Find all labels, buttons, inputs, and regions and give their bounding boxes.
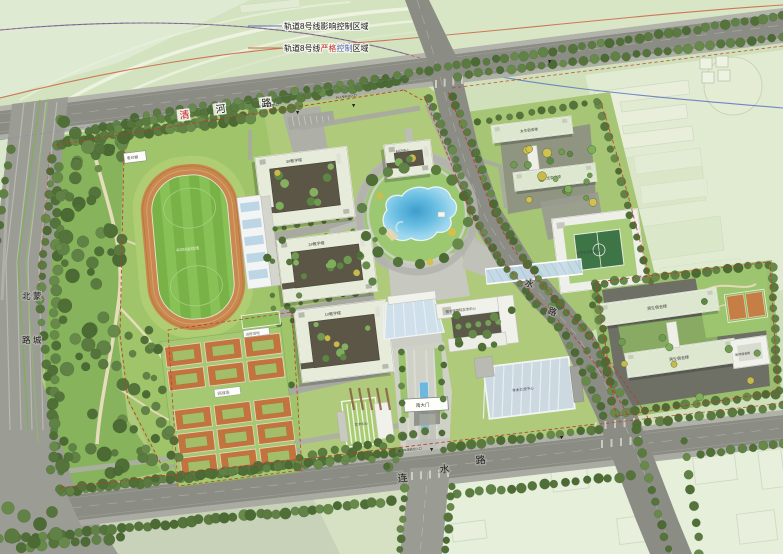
svg-text:轨道8号线严格控制区域: 轨道8号线严格控制区域 — [284, 43, 368, 53]
svg-text:北 蒙: 北 蒙 — [22, 291, 42, 301]
svg-text:河: 河 — [215, 103, 226, 116]
svg-text:路 城: 路 城 — [22, 335, 42, 345]
svg-text:清: 清 — [179, 108, 191, 122]
svg-text:连: 连 — [397, 471, 408, 485]
svg-text:路: 路 — [475, 453, 486, 467]
svg-text:轨道8号线影响控制区域: 轨道8号线影响控制区域 — [284, 21, 368, 31]
svg-text:水: 水 — [439, 463, 450, 476]
